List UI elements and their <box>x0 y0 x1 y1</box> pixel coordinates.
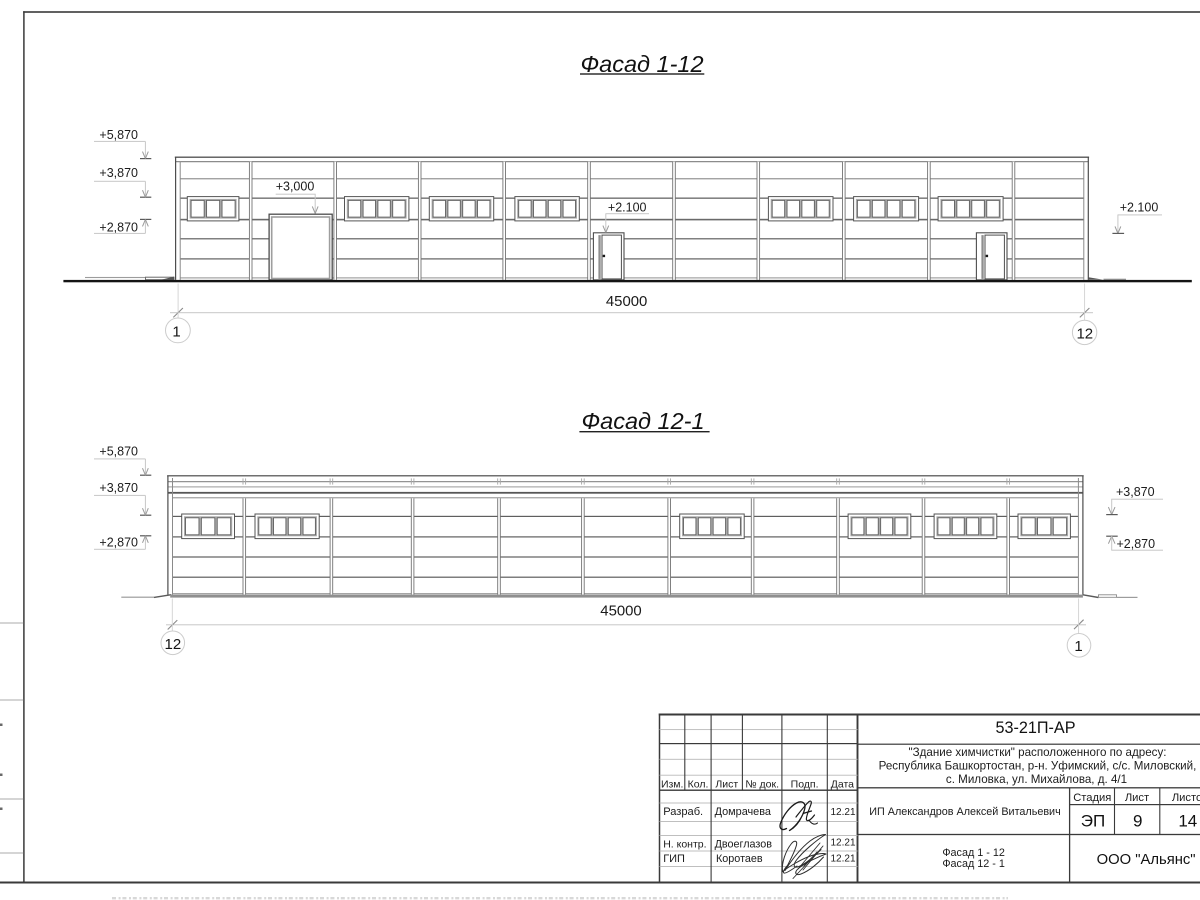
svg-text:+2.100: +2.100 <box>608 200 647 214</box>
svg-text:Лист: Лист <box>715 778 738 790</box>
svg-text:Н. контр.: Н. контр. <box>663 838 706 850</box>
svg-text:Домрачева: Домрачева <box>715 806 772 818</box>
svg-text:Республика Башкортостан, р-н.: Республика Башкортостан, р-н. Уфимский, … <box>879 760 1197 773</box>
svg-text:Двоеглазов: Двоеглазов <box>715 838 773 850</box>
svg-text:+5,870: +5,870 <box>99 128 138 142</box>
svg-text:+2,870: +2,870 <box>99 220 138 234</box>
svg-text:№ док.: № док. <box>745 778 779 790</box>
svg-text:45000: 45000 <box>606 294 647 310</box>
svg-text:ИП Александров Алексей Виталье: ИП Александров Алексей Витальевич <box>869 806 1060 818</box>
svg-text:1: 1 <box>1074 638 1082 655</box>
svg-text:Разраб.: Разраб. <box>663 806 703 818</box>
svg-text:12.21: 12.21 <box>830 853 855 864</box>
svg-text:Подп.: Подп. <box>791 778 819 790</box>
svg-text:Дата: Дата <box>831 778 854 790</box>
svg-text:+3,870: +3,870 <box>99 481 138 495</box>
svg-text:12.21: 12.21 <box>830 838 855 849</box>
svg-text:45000: 45000 <box>600 604 641 620</box>
svg-text:53-21П-АР: 53-21П-АР <box>995 719 1075 737</box>
svg-text:с. Миловка, ул. Михайлова, д.: с. Миловка, ул. Михайлова, д. 4/1 <box>946 773 1127 786</box>
svg-text:Фасад 1 - 12: Фасад 1 - 12 <box>942 847 1005 859</box>
svg-text:Фасад 1-12: Фасад 1-12 <box>580 51 703 77</box>
svg-text:14: 14 <box>1178 811 1197 830</box>
svg-text:+2.100: +2.100 <box>1120 201 1159 215</box>
svg-text:Изм.: Изм. <box>661 778 684 790</box>
svg-text:Фасад 12 - 1: Фасад 12 - 1 <box>942 858 1005 870</box>
svg-text:Стадия: Стадия <box>1073 792 1111 804</box>
svg-text:ООО "Альянс": ООО "Альянс" <box>1097 852 1196 868</box>
svg-text:Листов: Листов <box>1172 792 1200 804</box>
svg-text:+3,000: +3,000 <box>276 179 315 193</box>
svg-text:9: 9 <box>1133 811 1142 830</box>
svg-text:+2,870: +2,870 <box>1117 537 1156 551</box>
svg-text:"Здание химчистки" расположенн: "Здание химчистки" расположенного по адр… <box>909 746 1167 759</box>
svg-text:ЭП: ЭП <box>1081 811 1105 830</box>
svg-text:Кол.: Кол. <box>688 778 709 790</box>
svg-text:Коротаев: Коротаев <box>716 853 763 865</box>
svg-text:12.21: 12.21 <box>830 807 855 818</box>
svg-text:ГИП: ГИП <box>663 853 685 865</box>
svg-text:Фасад 12-1: Фасад 12-1 <box>581 408 704 434</box>
svg-text:+3,870: +3,870 <box>1116 485 1155 499</box>
svg-text:+5,870: +5,870 <box>99 444 138 458</box>
svg-text:+3,870: +3,870 <box>99 166 138 180</box>
svg-text:+2,870: +2,870 <box>99 536 138 550</box>
svg-text:12: 12 <box>1076 325 1093 342</box>
svg-text:1: 1 <box>172 324 180 341</box>
svg-text:12: 12 <box>165 636 182 653</box>
svg-text:Лист: Лист <box>1125 792 1149 804</box>
